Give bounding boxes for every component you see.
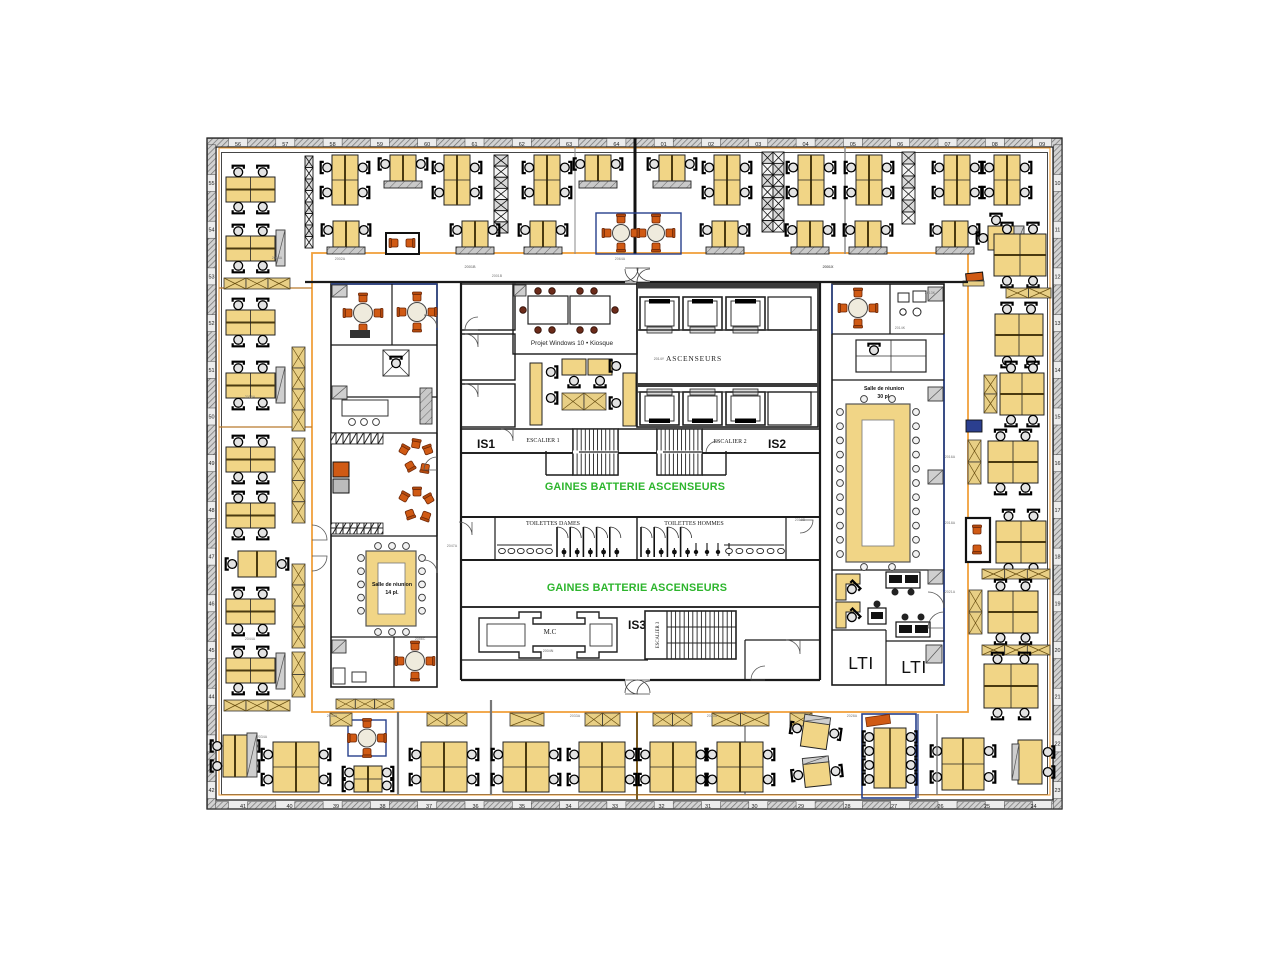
svg-text:52: 52 <box>208 321 214 327</box>
svg-text:60: 60 <box>424 142 430 148</box>
svg-text:56: 56 <box>235 142 241 148</box>
svg-text:35: 35 <box>519 804 525 810</box>
svg-text:25: 25 <box>984 804 990 810</box>
svg-text:24: 24 <box>1030 804 1036 810</box>
svg-text:40: 40 <box>286 804 292 810</box>
svg-text:2033A: 2033A <box>570 714 581 718</box>
svg-text:2014Y: 2014Y <box>654 357 665 361</box>
svg-text:2044A: 2044A <box>245 637 256 641</box>
svg-text:26: 26 <box>937 804 943 810</box>
svg-text:61: 61 <box>471 142 477 148</box>
svg-text:14: 14 <box>1054 368 1060 374</box>
svg-text:28: 28 <box>844 804 850 810</box>
svg-text:16: 16 <box>1054 461 1060 467</box>
svg-text:Projet Windows 10 • Kiosque: Projet Windows 10 • Kiosque <box>531 340 614 347</box>
svg-text:33: 33 <box>612 804 618 810</box>
svg-text:27: 27 <box>891 804 897 810</box>
svg-text:17: 17 <box>1054 508 1060 514</box>
svg-text:48: 48 <box>208 508 214 514</box>
svg-text:06: 06 <box>897 142 903 148</box>
svg-text:2014K: 2014K <box>895 326 906 330</box>
svg-text:21: 21 <box>1054 695 1060 701</box>
svg-text:05: 05 <box>850 142 856 148</box>
svg-text:2028A: 2028A <box>847 714 858 718</box>
svg-text:Salle de réunion: Salle de réunion <box>372 582 412 588</box>
svg-text:12: 12 <box>1054 274 1060 280</box>
svg-text:2016A: 2016A <box>945 455 956 459</box>
svg-text:51: 51 <box>208 368 214 374</box>
svg-text:13: 13 <box>1054 321 1060 327</box>
svg-text:50: 50 <box>208 415 214 421</box>
svg-text:ESCALIER 2: ESCALIER 2 <box>713 439 746 445</box>
svg-text:02: 02 <box>708 142 714 148</box>
svg-text:IS3: IS3 <box>628 618 646 632</box>
svg-text:11: 11 <box>1055 228 1061 234</box>
svg-text:2047A: 2047A <box>447 544 458 548</box>
svg-text:45: 45 <box>208 648 214 654</box>
svg-text:01: 01 <box>661 142 667 148</box>
svg-text:2002A: 2002A <box>335 257 346 261</box>
svg-text:IS1: IS1 <box>477 437 495 451</box>
svg-text:20: 20 <box>1054 648 1060 654</box>
svg-text:IS2: IS2 <box>768 437 786 451</box>
svg-text:08: 08 <box>992 142 998 148</box>
svg-text:07: 07 <box>944 142 950 148</box>
svg-text:18: 18 <box>1054 555 1060 561</box>
svg-text:2034A: 2034A <box>257 735 268 739</box>
svg-text:29: 29 <box>798 804 804 810</box>
svg-text:2030A: 2030A <box>707 714 718 718</box>
svg-text:ESCALIER 1: ESCALIER 1 <box>526 438 559 444</box>
svg-text:59: 59 <box>377 142 383 148</box>
svg-text:ASCENSEURS: ASCENSEURS <box>666 354 722 363</box>
svg-text:2035A: 2035A <box>327 714 338 718</box>
svg-text:30: 30 <box>751 804 757 810</box>
svg-text:62: 62 <box>519 142 525 148</box>
svg-text:M.C: M.C <box>544 628 557 636</box>
svg-text:LTI: LTI <box>848 653 874 673</box>
svg-text:GAINES BATTERIE ASCENSEURS: GAINES BATTERIE ASCENSEURS <box>545 481 725 493</box>
svg-text:14 pl.: 14 pl. <box>385 590 399 596</box>
svg-text:42: 42 <box>208 788 214 794</box>
svg-text:Salle de réunion: Salle de réunion <box>864 386 904 392</box>
svg-text:2056C: 2056C <box>415 637 426 641</box>
svg-text:TOILETTES HOMMES: TOILETTES HOMMES <box>664 521 723 527</box>
svg-text:03: 03 <box>755 142 761 148</box>
svg-text:2003A: 2003A <box>272 256 283 260</box>
svg-text:58: 58 <box>330 142 336 148</box>
svg-text:2013K: 2013K <box>925 291 936 295</box>
svg-text:23: 23 <box>1054 788 1060 794</box>
svg-text:2018A: 2018A <box>945 521 956 525</box>
svg-text:39: 39 <box>333 804 339 810</box>
svg-text:04: 04 <box>803 142 809 148</box>
svg-text:31: 31 <box>705 804 711 810</box>
svg-text:19: 19 <box>1054 601 1060 607</box>
svg-text:ESCALIER 3: ESCALIER 3 <box>656 621 661 648</box>
svg-text:09: 09 <box>1039 142 1045 148</box>
svg-text:15: 15 <box>1054 415 1060 421</box>
svg-text:2001X: 2001X <box>823 265 834 269</box>
svg-text:34: 34 <box>565 804 571 810</box>
svg-text:54: 54 <box>208 228 214 234</box>
svg-text:36: 36 <box>472 804 478 810</box>
svg-text:32: 32 <box>658 804 664 810</box>
svg-text:GAINES BATTERIE ASCENSEURS: GAINES BATTERIE ASCENSEURS <box>547 582 727 594</box>
svg-text:37: 37 <box>426 804 432 810</box>
svg-text:2004N: 2004N <box>543 649 554 653</box>
svg-text:41: 41 <box>240 804 246 810</box>
svg-text:10: 10 <box>1054 181 1060 187</box>
svg-text:47: 47 <box>208 555 214 561</box>
svg-text:38: 38 <box>379 804 385 810</box>
svg-text:2018B: 2018B <box>795 518 806 522</box>
svg-text:2001B: 2001B <box>492 274 503 278</box>
svg-text:63: 63 <box>566 142 572 148</box>
svg-text:2059A: 2059A <box>245 395 256 399</box>
svg-text:LTI: LTI <box>901 657 927 677</box>
svg-text:57: 57 <box>282 142 288 148</box>
svg-text:TOILETTES DAMES: TOILETTES DAMES <box>526 521 580 527</box>
svg-text:64: 64 <box>613 142 619 148</box>
svg-text:55: 55 <box>208 181 214 187</box>
svg-text:2064A: 2064A <box>615 257 626 261</box>
svg-text:49: 49 <box>208 461 214 467</box>
svg-text:2001B: 2001B <box>465 265 476 269</box>
svg-text:2021A: 2021A <box>945 590 956 594</box>
svg-text:44: 44 <box>208 695 214 701</box>
svg-text:46: 46 <box>208 601 214 607</box>
svg-text:53: 53 <box>208 274 214 280</box>
